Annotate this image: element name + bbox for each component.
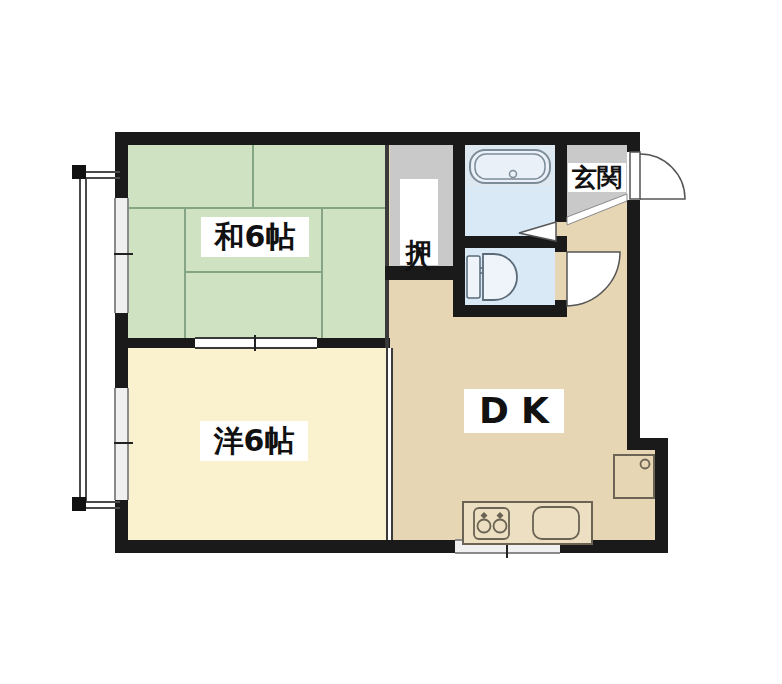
toilet-door-icon — [567, 252, 620, 306]
room-label-washitsu: 和6帖 — [201, 217, 309, 257]
floor-plan: 和6帖 洋6帖 DK 押入 玄関 — [0, 0, 782, 684]
entrance-door-icon — [630, 152, 685, 199]
room-label-oshiire: 押入 — [400, 179, 438, 265]
room-label-genkan: 玄関 — [568, 163, 626, 192]
genkan-step-edge — [567, 194, 627, 225]
toilet-icon — [467, 254, 517, 300]
bathroom-folding-door-icon — [519, 222, 556, 241]
room-label-youshitsu: 洋6帖 — [200, 421, 308, 461]
kitchen-counter-icon — [463, 502, 592, 544]
bathtub-icon — [470, 150, 550, 183]
washing-machine-pan-icon — [614, 455, 654, 498]
room-label-dk: DK — [464, 389, 564, 433]
fixtures-layer — [0, 0, 782, 684]
